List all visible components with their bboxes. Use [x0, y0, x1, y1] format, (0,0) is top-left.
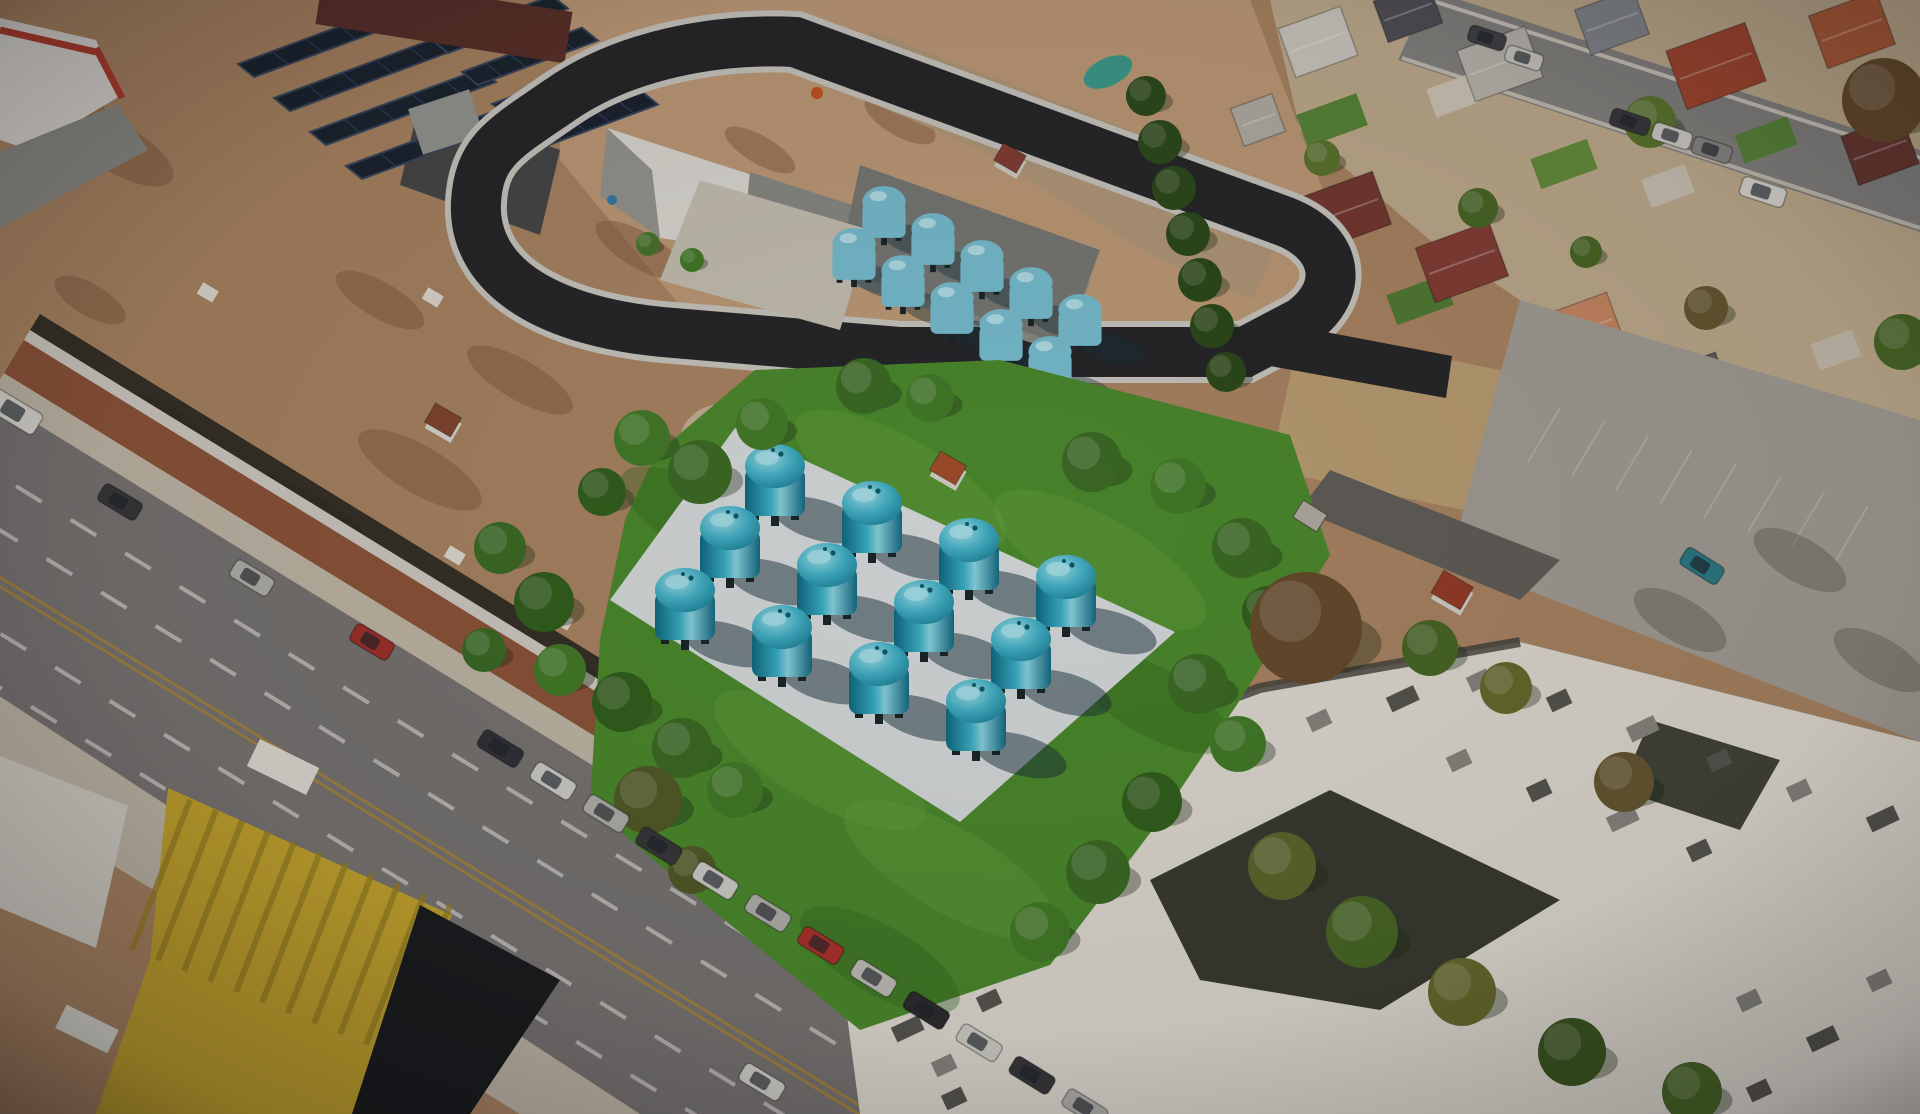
- vignette-overlay: [0, 0, 1920, 1114]
- aerial-image: [0, 0, 1920, 1114]
- aerial-photo-stage: [0, 0, 1920, 1114]
